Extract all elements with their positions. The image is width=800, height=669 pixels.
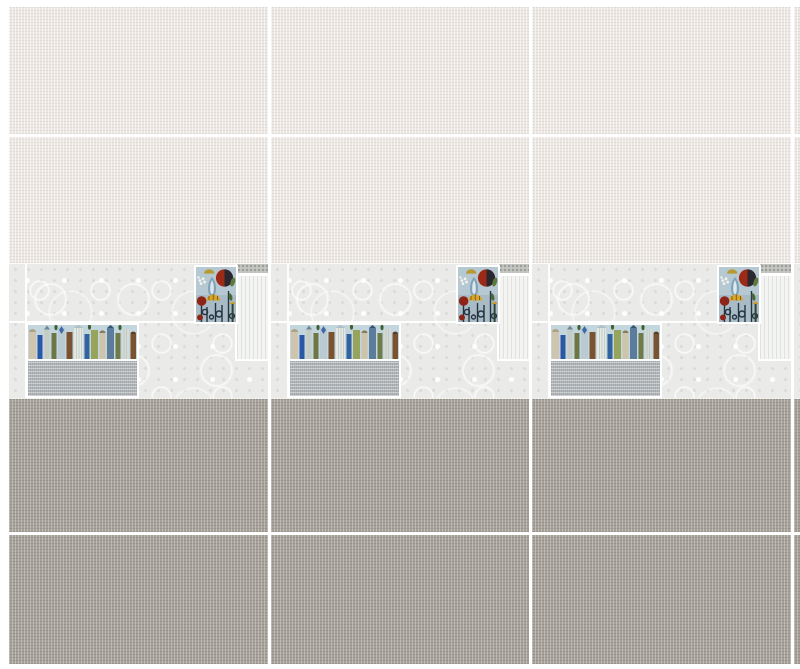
taupe-tile-edge [794,398,800,532]
taupe-tile-row-1 [271,398,530,532]
houses-art-tile [290,325,399,359]
floral-art-illustration [196,267,236,322]
tile-wall [0,0,800,669]
grout-line [532,321,717,323]
decor-band [271,263,530,398]
plain-white-tile [499,276,530,359]
gray-linen-tile [290,361,399,396]
cream-tile-row-2 [271,137,530,263]
taupe-tile-row-2 [9,535,268,664]
houses-art-illustration [28,325,137,359]
taupe-tile-edge [794,535,800,664]
floral-art-tile [458,267,498,322]
grout-line [25,264,27,398]
taupe-tile-row-1 [532,398,791,532]
grout-line [271,321,456,323]
cream-tile-row-1 [271,7,530,134]
houses-art-tile [551,325,660,359]
floral-art-illustration [458,267,498,322]
taupe-tile-row-1 [9,398,268,532]
cream-tile-row-1 [9,7,268,134]
taupe-tile-row-2 [271,535,530,664]
plain-white-tile [237,276,268,359]
tile-column-edge-sliver [794,7,800,664]
cream-tile-edge [794,137,800,263]
plain-white-tile [760,276,791,359]
houses-art-tile [28,325,137,359]
houses-art-illustration [290,325,399,359]
decor-band [532,263,791,398]
floral-art-tile [196,267,236,322]
taupe-tile-row-2 [532,535,791,664]
cream-tile-row-1 [532,7,791,134]
cream-tile-row-2 [532,137,791,263]
floral-art-tile [719,267,759,322]
floral-art-illustration [719,267,759,322]
tile-column [271,7,530,664]
grout-line [9,321,194,323]
tile-column [532,7,791,664]
mosaic-strip-tile [760,264,791,273]
gray-linen-tile [551,361,660,396]
grout-line [287,264,289,398]
decor-band-edge [794,263,800,398]
grout-line [548,264,550,398]
mosaic-strip-tile [237,264,268,273]
decor-band [9,263,268,398]
mosaic-strip-tile [499,264,530,273]
tile-column [9,7,268,664]
cream-tile-edge [794,7,800,134]
cream-tile-row-2 [9,137,268,263]
gray-linen-tile [28,361,137,396]
houses-art-illustration [551,325,660,359]
